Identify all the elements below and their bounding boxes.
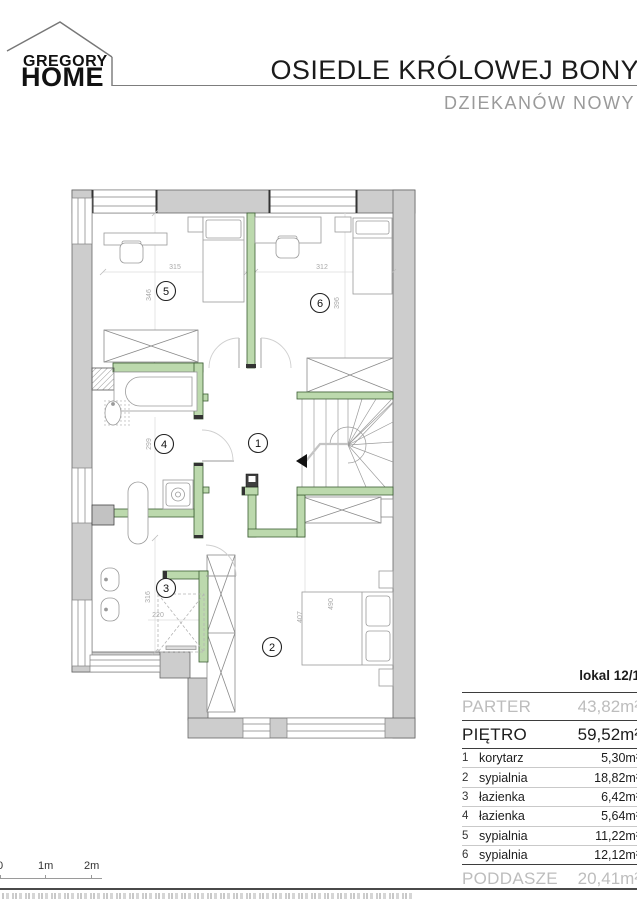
room-badge-2: 2 [263, 638, 282, 657]
room-name: łazienka [479, 790, 601, 804]
wardrobe-room2-tall [207, 555, 235, 712]
wall-room5-room6 [247, 213, 255, 368]
room-no: 1 [462, 752, 479, 764]
window-left-lower-icon [72, 600, 92, 666]
svg-text:490: 490 [328, 598, 335, 610]
scale-line [0, 878, 102, 879]
staircase [296, 399, 393, 487]
svg-text:346: 346 [146, 289, 153, 301]
table-row: 4 łazienka 5,64m² [462, 807, 637, 826]
room6-bed-icon [353, 218, 392, 294]
floor-plan-drawing: 1 2 3 4 5 6 315 [60, 150, 440, 770]
room2-bed-icon [302, 592, 393, 665]
svg-text:2: 2 [269, 642, 275, 654]
room-name: sypialnia [479, 771, 594, 785]
window-left-upper-icon [72, 198, 92, 244]
room-no: 5 [462, 830, 479, 842]
svg-text:5: 5 [163, 286, 169, 298]
room-area: 5,30m² [601, 751, 637, 765]
window-bottom-small-icon [243, 718, 270, 738]
room-area: 12,12m² [594, 848, 637, 862]
room-no: 4 [462, 810, 479, 822]
toilet-icon [128, 482, 148, 544]
room-name: sypialnia [479, 829, 595, 843]
svg-text:1: 1 [255, 438, 261, 450]
area-table: lokal 12/1 PARTER 43,82m² PIĘTRO 59,52m²… [462, 664, 637, 892]
wall-stairs-top [297, 392, 393, 399]
window-left-middle-icon [72, 468, 92, 523]
svg-text:3: 3 [163, 583, 169, 595]
room-name: korytarz [479, 751, 601, 765]
door-swings [202, 338, 291, 576]
table-row: 6 sypialnia 12,12m² [462, 846, 637, 864]
room5-desk-icon [104, 233, 167, 263]
floor-area: 59,52m² [578, 725, 637, 745]
room-area: 6,42m² [601, 790, 637, 804]
washing-machine-icon [163, 480, 193, 509]
bath4-sink-icon [102, 398, 132, 426]
room-badge-5: 5 [157, 282, 176, 301]
table-row: 1 korytarz 5,30m² [462, 749, 637, 768]
room-badge-4: 4 [155, 435, 174, 454]
floor-area: 20,41m² [578, 869, 637, 889]
table-row-parter: PARTER 43,82m² [462, 693, 637, 720]
wardrobe-room6 [307, 358, 393, 392]
scale-label-2m: 2m [84, 860, 99, 872]
svg-text:396: 396 [334, 297, 341, 309]
table-row: 2 sypialnia 18,82m² [462, 768, 637, 787]
room-badge-6: 6 [311, 294, 330, 313]
scale-label-1m: 1m [38, 860, 53, 872]
wardrobe-room5 [104, 330, 198, 362]
wall-bath4-top [113, 363, 203, 372]
wall-bath4-bottom [114, 509, 194, 517]
room-area: 18,82m² [594, 771, 637, 785]
room-badge-1: 1 [249, 434, 268, 453]
brand-name-bottom: HOME [21, 64, 104, 91]
room-name: łazienka [479, 809, 601, 823]
floorplan-sheet: GREGORY HOME OSIEDLE KRÓLOWEJ BONY DZIEK… [0, 0, 637, 901]
page-title: OSIEDLE KRÓLOWEJ BONY [271, 55, 637, 86]
wardrobe-room2-top [303, 497, 393, 523]
svg-text:316: 316 [145, 591, 152, 603]
room-name: sypialnia [479, 848, 594, 862]
table-row: 5 sypialnia 11,22m² [462, 827, 637, 846]
room6-desk-icon [255, 217, 321, 258]
room-area: 11,22m² [595, 829, 637, 843]
floor-label: PIĘTRO [462, 725, 527, 745]
stairs-direction-arrow-icon [296, 454, 307, 468]
svg-text:315: 315 [169, 264, 181, 271]
room-badge-3: 3 [157, 579, 176, 598]
floor-area: 43,82m² [578, 697, 637, 717]
scale-label-0: 0 [0, 860, 3, 872]
room-area: 5,64m² [601, 809, 637, 823]
svg-text:312: 312 [316, 264, 328, 271]
table-row: 3 łazienka 6,42m² [462, 788, 637, 807]
room2-nightstand-bottom-icon [379, 669, 393, 686]
window-top-right-icon [269, 190, 358, 213]
room5-bed-icon [203, 217, 244, 302]
svg-text:407: 407 [297, 611, 304, 623]
duct-icon [246, 474, 258, 487]
wall-room3-side [199, 571, 208, 662]
room-no: 2 [462, 772, 479, 784]
bath3-sinks-icon [101, 568, 119, 621]
table-row-pietro: PIĘTRO 59,52m² [462, 721, 637, 748]
svg-text:4: 4 [161, 439, 167, 451]
room-no: 6 [462, 849, 479, 861]
floor-label: PARTER [462, 697, 531, 717]
room2-nightstand-top-icon [379, 571, 393, 588]
svg-text:6: 6 [317, 298, 323, 310]
window-bottom-left-icon [90, 655, 160, 672]
dimension-labels: 315 312 346 396 299 316 220 407 490 [145, 264, 341, 623]
wall-bath3-bath4 [194, 463, 203, 538]
page-subtitle: DZIEKANÓW NOWY [444, 93, 635, 114]
footer-fine-print [2, 893, 412, 899]
window-bottom-wide-icon [287, 718, 385, 738]
unit-label: lokal 12/1 [462, 664, 637, 692]
footer-divider [0, 888, 637, 890]
room5-nightstand-icon [188, 217, 203, 232]
room-no: 3 [462, 791, 479, 803]
shower-area-icon [158, 594, 204, 652]
window-top-left-icon [92, 190, 158, 213]
floor-label: PODDASZE [462, 869, 558, 889]
svg-text:220: 220 [152, 612, 164, 619]
scale-bar: 0 1m 2m [0, 860, 120, 884]
wall-stairs-bottom [297, 487, 393, 495]
room-rows: 1 korytarz 5,30m² 2 sypialnia 18,82m² 3 … [462, 749, 637, 864]
room6-nightstand-icon [335, 217, 351, 232]
svg-text:299: 299 [146, 438, 153, 450]
